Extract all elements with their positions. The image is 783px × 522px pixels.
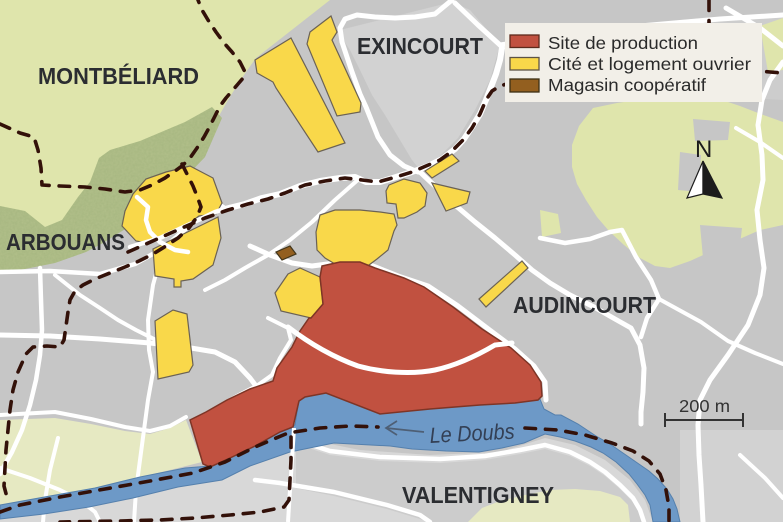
- svg-text:Le Doubs: Le Doubs: [429, 419, 515, 448]
- svg-text:AUDINCOURT: AUDINCOURT: [513, 292, 656, 318]
- svg-text:Site de production: Site de production: [548, 33, 698, 53]
- svg-text:Cité et logement ouvrier: Cité et logement ouvrier: [548, 54, 751, 74]
- svg-text:EXINCOURT: EXINCOURT: [357, 33, 484, 59]
- svg-text:Magasin coopératif: Magasin coopératif: [548, 75, 706, 95]
- svg-text:N: N: [695, 136, 712, 163]
- svg-text:VALENTIGNEY: VALENTIGNEY: [402, 482, 554, 508]
- svg-text:ARBOUANS: ARBOUANS: [6, 229, 125, 255]
- svg-text:MONTBÉLIARD: MONTBÉLIARD: [38, 62, 199, 89]
- svg-text:200 m: 200 m: [679, 396, 730, 416]
